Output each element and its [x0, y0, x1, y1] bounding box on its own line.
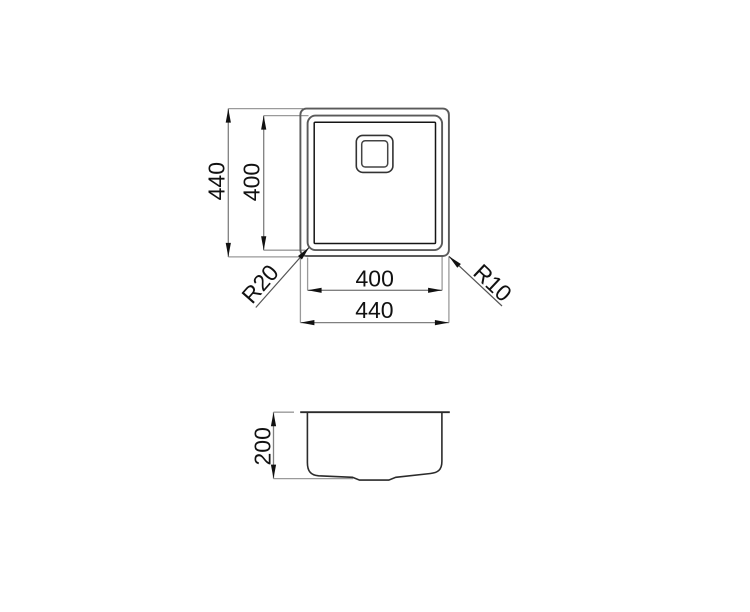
- svg-text:400: 400: [356, 265, 394, 291]
- svg-text:440: 440: [355, 297, 393, 323]
- svg-text:400: 400: [238, 163, 264, 201]
- svg-text:200: 200: [250, 427, 276, 465]
- svg-text:440: 440: [204, 162, 230, 200]
